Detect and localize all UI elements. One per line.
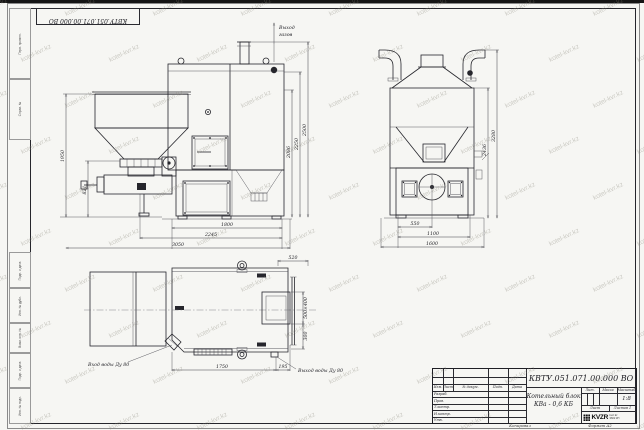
- hopper-plan: [90, 272, 166, 346]
- dim-side-w3: 1600: [426, 241, 438, 247]
- dim-burner-height: 821: [82, 186, 88, 195]
- gas-outlet-label: газов: [279, 33, 293, 38]
- plan-view: Вход воды Ду 80 Выход воды Ду 80 520 500…: [84, 255, 343, 374]
- row-tkontr: Т.контр.: [434, 405, 450, 409]
- gas-outlet-label: Выход: [278, 25, 295, 31]
- col-docum: № докум.: [453, 385, 488, 389]
- boiler-door: [192, 136, 228, 169]
- title-block: Изм. Лист № докум. Подп. Дата Разраб. Пр…: [432, 368, 637, 424]
- row-nkontr: Н.контр.: [434, 412, 451, 416]
- sheets-label: Листов 1: [609, 406, 636, 410]
- logo-sub2: 3602 КП: [610, 417, 620, 420]
- flue-elbow: [379, 58, 393, 80]
- hopper-window: [423, 144, 445, 162]
- col-podp: Подп.: [488, 385, 508, 389]
- boiler-body: [168, 64, 284, 170]
- dim-plan-top: 520: [289, 255, 298, 261]
- company-logo: KVZR kvzr.kz 3602 КП: [583, 412, 635, 422]
- doc-number: КВТУ.051.071.00.000 ВО: [526, 374, 636, 383]
- dim-front-w1: 1800: [221, 222, 233, 228]
- dim-plan-window: 500×400: [303, 297, 309, 319]
- lifting-eye: [238, 261, 247, 270]
- logo-mark-icon: [583, 414, 590, 421]
- dim-side-h2: 3280: [491, 130, 497, 142]
- dim-front-h1: 2086: [286, 146, 292, 159]
- flue-collar: [421, 55, 443, 67]
- dim-plan-offset: 300: [303, 332, 309, 341]
- product-name: Котельный блок: [526, 393, 581, 400]
- water-inlet-stub: [165, 334, 181, 350]
- ash-hopper: [236, 170, 282, 193]
- row-razrab: Разраб.: [434, 392, 448, 396]
- safety-valve: [271, 67, 277, 73]
- furnace-door: [183, 181, 230, 215]
- fuel-hopper: [95, 94, 188, 128]
- sheets-count: 1: [629, 406, 631, 410]
- mass-label: Масса: [599, 388, 617, 392]
- dim-side-h1: 2436: [482, 144, 488, 157]
- row-utv: Утв.: [434, 418, 443, 422]
- dim-plan-length: 1750: [216, 364, 228, 370]
- regulator: [474, 151, 482, 157]
- lifting-lug: [178, 58, 184, 64]
- lifting-lug: [263, 58, 269, 64]
- auger-motor: [137, 183, 146, 190]
- water-inlet-label: Вход воды Ду 80: [87, 362, 129, 368]
- sheets-word: Листов: [614, 406, 628, 410]
- logo-subtext: kvzr.kz 3602 КП: [610, 414, 620, 420]
- dim-front-w3: 3050: [172, 242, 184, 248]
- lit-label: Лит.: [581, 388, 599, 392]
- water-outlet-label: Выход воды Ду 80: [297, 368, 343, 374]
- scale-label: Масштаб: [617, 388, 636, 392]
- dim-front-h2: 2250: [294, 138, 300, 151]
- water-outlet-stub: [271, 352, 278, 357]
- dim-plan-stub: 195: [279, 364, 288, 370]
- logo-text: KVZR: [592, 414, 609, 421]
- col-data: Дата: [508, 385, 526, 389]
- dim-side-w1: 550: [411, 221, 420, 227]
- safety-valve: [467, 70, 473, 76]
- dim-side-w2: 1100: [427, 231, 439, 237]
- product-type: КВа - 0,6 КБ: [526, 401, 581, 408]
- chimney-stub: [240, 42, 249, 64]
- lifting-eye: [238, 350, 247, 359]
- sheet: { "sheet": { "stamp_top_left": "КВТУ.051…: [0, 0, 644, 430]
- scale-value: 1:8: [617, 396, 636, 402]
- front-view: Выход газов 1950 821 2086 2250 2500 1800…: [60, 23, 310, 249]
- dim-front-w2: 2245: [204, 232, 217, 238]
- top-left-stamp: КВТУ.051.071.00.000 ВО: [36, 8, 140, 25]
- sheet-label: Лист: [581, 406, 609, 410]
- col-list: Лист: [443, 385, 453, 389]
- flue-elbow: [471, 58, 485, 80]
- drawing-area: Выход газов 1950 821 2086 2250 2500 1800…: [0, 0, 644, 430]
- dim-front-height: 1950: [60, 150, 66, 162]
- row-prov: Пров.: [434, 399, 444, 403]
- side-view: 550 1100 1600 2436 3280: [379, 50, 499, 248]
- col-izm: Изм.: [433, 385, 443, 389]
- dim-front-h3: 2500: [302, 124, 308, 137]
